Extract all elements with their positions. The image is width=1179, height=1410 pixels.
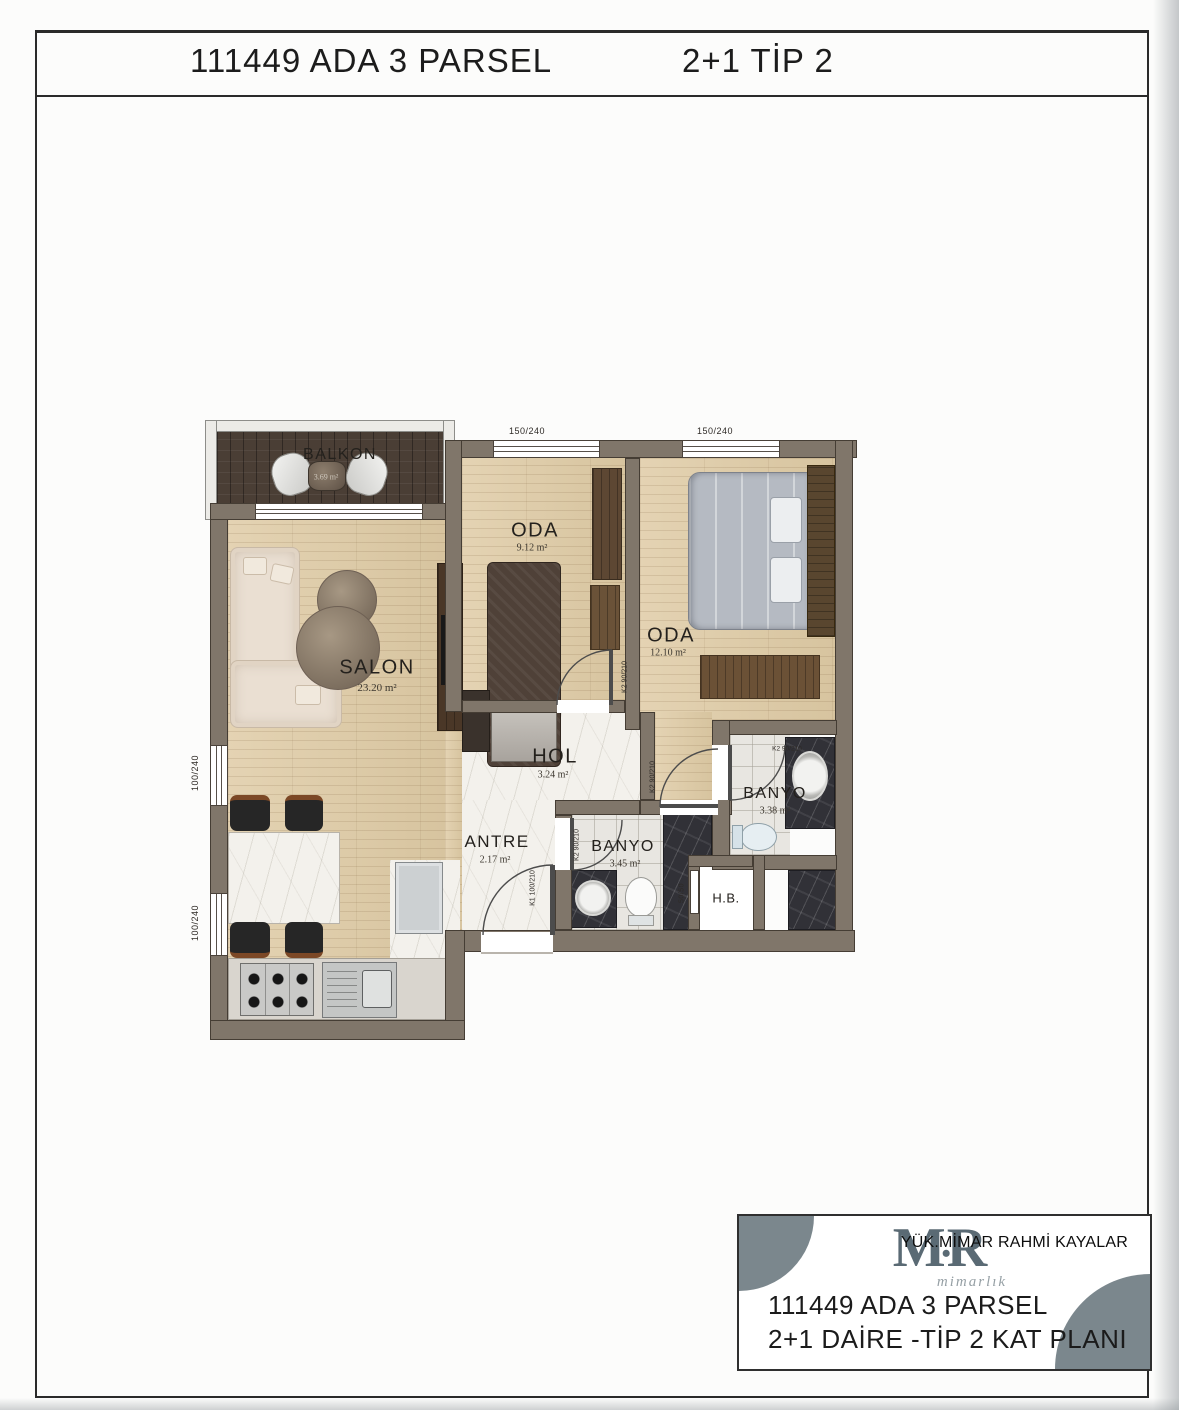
toilet-tank (732, 825, 743, 849)
wall (555, 800, 640, 815)
dim-window-left-2: 100/240 (190, 905, 200, 941)
room-label-oda2: ODA (647, 625, 695, 648)
room-area-banyo2: 3.38 m² (760, 806, 791, 817)
door-leaf-banyo2 (728, 745, 732, 800)
room-area-hol: 3.24 m² (538, 770, 569, 781)
room-label-banyo1: BANYO (591, 838, 655, 856)
sink-basin (362, 970, 392, 1008)
floor-plan-sheet: 111449 ADA 3 PARSEL 2+1 TİP 2 (0, 0, 1179, 1410)
dining-chair (285, 922, 323, 958)
entrance-door-leaf (550, 865, 555, 935)
oda2-corridor-floor (655, 712, 712, 800)
wall (445, 440, 462, 712)
door-label-oda1: K2 90/210 (622, 661, 629, 693)
room-label-oda1: ODA (511, 520, 559, 543)
dim-shaft: 50/50 (679, 883, 686, 903)
window-left-2 (210, 893, 228, 956)
balcony-rail-top (205, 420, 455, 432)
door-label-banyo1: K2 90/210 (574, 829, 581, 861)
wall (210, 1020, 465, 1040)
page-title-right: 2+1 TİP 2 (682, 42, 834, 80)
stove (240, 963, 314, 1016)
balcony-sliding-door (255, 503, 423, 520)
entrance-opening (481, 932, 553, 954)
toilet (741, 823, 777, 851)
dining-chair (230, 922, 270, 958)
wall (688, 855, 753, 867)
headboard (807, 465, 835, 637)
window-top-oda1 (493, 440, 600, 458)
logo-subtitle: mimarlık (917, 1274, 1027, 1291)
door-leaf-oda1 (609, 650, 613, 705)
dim-window-left-1: 100/240 (190, 755, 200, 791)
room-label-salon: SALON (339, 657, 414, 680)
page-title-left: 111449 ADA 3 PARSEL (190, 42, 552, 80)
door-label-oda2: K2 90/210 (650, 761, 657, 793)
door-leaf-oda2 (660, 804, 718, 808)
title-block: M•R mimarlık YÜK.MİMAR RAHMİ KAYALAR 111… (737, 1214, 1152, 1371)
room-area-antre: 2.17 m² (480, 855, 511, 866)
bed-pillow (770, 497, 802, 543)
room-label-hb: H.B. (712, 891, 739, 906)
scan-shadow (1153, 0, 1179, 1410)
dark-marble-right (788, 870, 837, 930)
title-block-corner-circle (737, 1214, 814, 1291)
title-block-line2: 2+1 DAİRE -TİP 2 KAT PLANI (768, 1324, 1127, 1355)
wall (835, 440, 853, 952)
room-label-balkon: BALKON (303, 446, 377, 464)
wall (753, 855, 765, 930)
room-label-hol: HOL (532, 746, 578, 769)
double-bed (688, 472, 808, 630)
room-label-antre: ANTRE (464, 832, 529, 852)
door-label-entrance: K1 100/210 (530, 870, 537, 906)
door-label-banyo2: K2 90/210 (772, 746, 802, 753)
wardrobe (592, 468, 622, 580)
dining-chair (230, 795, 270, 831)
floor-plan: BALKON 3.69 m² SALON 23.20 m² ODA 9.12 m… (185, 415, 885, 1045)
dim-window-top-2: 150/240 (697, 426, 733, 436)
title-block-line1: 111449 ADA 3 PARSEL (768, 1290, 1048, 1321)
room-area-oda2: 12.10 m² (650, 648, 686, 659)
wall (712, 720, 837, 735)
shaft-vent-window (690, 870, 699, 914)
bed-pillow (770, 557, 802, 603)
room-label-banyo2: BANYO (743, 785, 807, 803)
fridge (395, 862, 443, 934)
door-opening-oda1 (557, 700, 609, 713)
title-block-corner-circle (1055, 1274, 1152, 1371)
dresser (700, 655, 820, 699)
toilet-tank (628, 915, 654, 926)
window-left-1 (210, 745, 228, 806)
dining-chair (285, 795, 323, 831)
architect-name: YÜK.MİMAR RAHMİ KAYALAR (901, 1234, 1128, 1252)
toilet (625, 877, 657, 917)
scan-shadow (0, 1398, 1179, 1410)
room-area-banyo1: 3.45 m² (610, 859, 641, 870)
room-area-salon: 23.20 m² (357, 682, 396, 694)
window-top-oda2 (682, 440, 780, 458)
dining-table (228, 832, 340, 924)
title-divider (35, 95, 1147, 97)
wardrobe (590, 585, 620, 650)
sofa-pillow (243, 557, 267, 575)
room-area-oda1: 9.12 m² (517, 543, 548, 554)
room-area-balkon: 3.69 m² (314, 473, 339, 482)
washbasin (575, 880, 611, 916)
sofa-pillow (295, 685, 321, 705)
dim-window-top-1: 150/240 (509, 426, 545, 436)
